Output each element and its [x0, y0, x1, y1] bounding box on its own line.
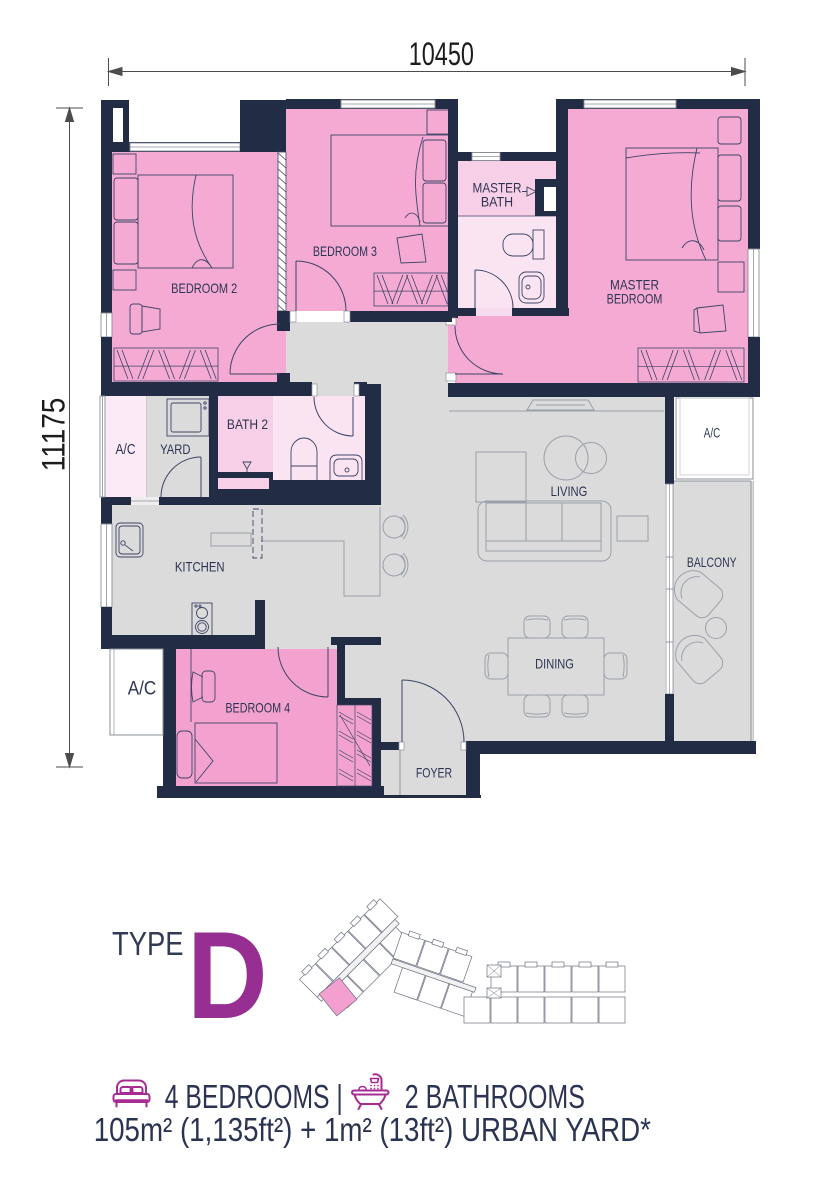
- svg-text:BALCONY: BALCONY: [687, 555, 737, 571]
- svg-text:D: D: [187, 906, 268, 1045]
- svg-text:11175: 11175: [37, 398, 72, 472]
- svg-text:4 BEDROOMS |: 4 BEDROOMS |: [165, 1080, 343, 1116]
- svg-text:DINING: DINING: [535, 656, 574, 671]
- svg-text:105m² (1,135ft²) + 1m² (13ft²): 105m² (1,135ft²) + 1m² (13ft²) URBAN YAR…: [94, 1112, 651, 1149]
- svg-text:BATH: BATH: [481, 194, 513, 210]
- svg-text:FOYER: FOYER: [416, 765, 452, 781]
- svg-text:LIVING: LIVING: [551, 484, 588, 499]
- svg-text:10450: 10450: [409, 36, 474, 71]
- svg-text:BEDROOM 2: BEDROOM 2: [171, 281, 237, 296]
- svg-text:A/C: A/C: [115, 441, 135, 458]
- svg-text:BATH 2: BATH 2: [227, 416, 268, 432]
- svg-text:A/C: A/C: [704, 425, 721, 441]
- svg-text:2 BATHROOMS: 2 BATHROOMS: [405, 1079, 585, 1116]
- svg-text:A/C: A/C: [128, 678, 157, 699]
- svg-text:TYPE: TYPE: [112, 927, 184, 963]
- svg-text:BEDROOM 3: BEDROOM 3: [313, 244, 377, 260]
- svg-text:BEDROOM 4: BEDROOM 4: [225, 700, 290, 715]
- svg-text:KITCHEN: KITCHEN: [175, 560, 225, 575]
- svg-text:BEDROOM: BEDROOM: [607, 291, 663, 306]
- svg-text:YARD: YARD: [160, 442, 190, 457]
